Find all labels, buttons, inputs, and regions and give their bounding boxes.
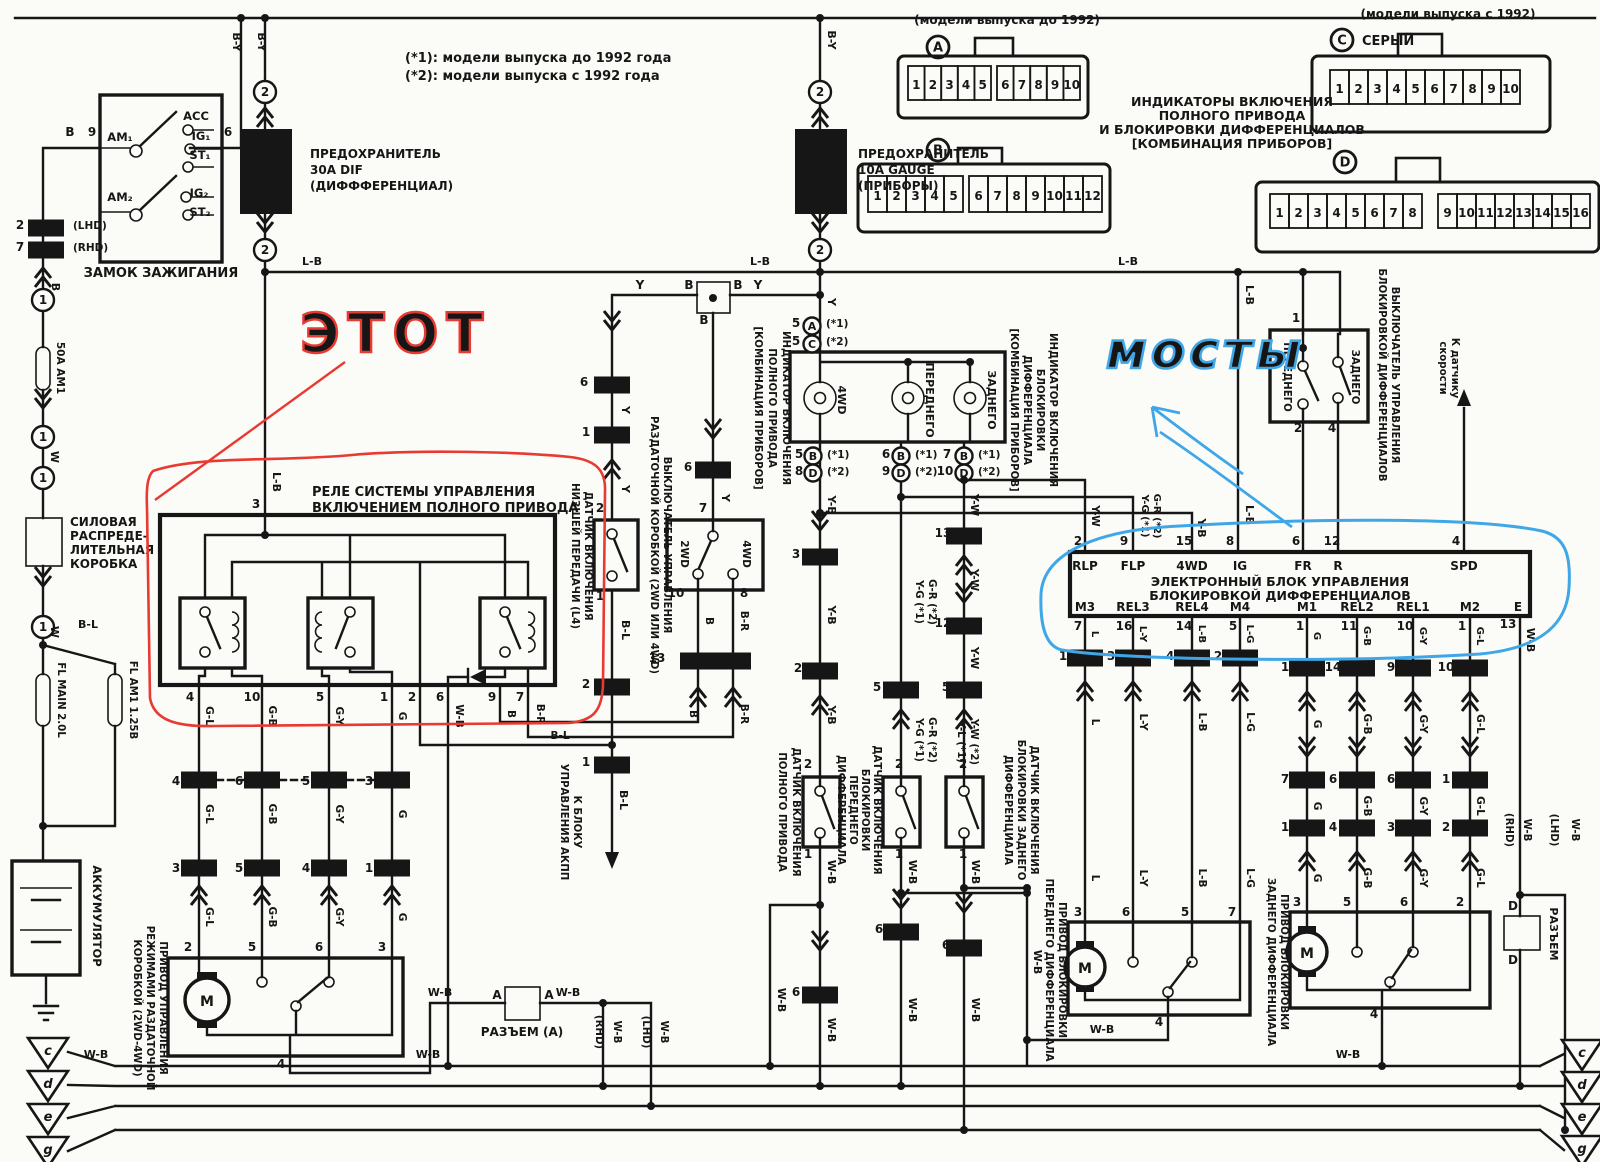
pin-number: 7 xyxy=(1389,206,1397,220)
diagram-label: (*2) xyxy=(827,466,849,478)
diagram-label: (*1) xyxy=(826,318,848,330)
pin-number: 4 xyxy=(1392,82,1400,96)
junction-dot xyxy=(960,1126,968,1134)
diagram-label: 10 xyxy=(937,464,954,478)
diagram-label: G-L xyxy=(203,804,215,824)
diagram-label: FLP xyxy=(1121,559,1146,573)
diagram-label: B-Y xyxy=(230,32,243,52)
pin-number: 9 xyxy=(1487,82,1495,96)
diagram-label: G-R (*2) xyxy=(926,717,937,763)
diagram-label: (ДИФФФЕРЕНЦИАЛ) xyxy=(310,179,453,193)
pin-number: 1 xyxy=(1335,82,1343,96)
diagram-label: B-R xyxy=(738,704,750,724)
diagram-label: 2 xyxy=(794,661,802,675)
pin-number: 4 xyxy=(962,78,970,92)
diagram-label: 5 xyxy=(792,334,800,348)
diagram-label: 9 xyxy=(882,464,890,478)
diagram-label: B-R xyxy=(534,704,546,724)
diagram-label: G-Y xyxy=(1417,627,1428,646)
diagram-label: W-B xyxy=(906,998,919,1023)
diagram-label: 6 xyxy=(1400,895,1408,909)
pin-number: 9 xyxy=(1051,78,1059,92)
diagram-label: 2 xyxy=(596,501,604,515)
diagram-label: 5 xyxy=(792,316,800,330)
diagram-label: A xyxy=(544,988,554,1002)
diagram-label: Y-B xyxy=(1195,517,1208,537)
pin-number: 2 xyxy=(1294,206,1302,220)
diagram-label: G-B xyxy=(1361,796,1373,817)
junction-dot xyxy=(1378,1062,1386,1070)
diagram-label: Y xyxy=(753,278,763,292)
diagram-label: ВКЛЮЧЕНИЕМ ПОЛНОГО ПРИВОДА xyxy=(312,501,579,516)
junction-dot xyxy=(897,493,905,501)
diagram-label: 1 xyxy=(582,755,590,769)
diagram-label: M2 xyxy=(1460,600,1480,614)
bus-triangle-letter: d xyxy=(43,1077,53,1092)
junction-dot xyxy=(39,822,47,830)
diagram-label: 9 xyxy=(1387,660,1395,674)
diagram-label: W-B xyxy=(906,860,919,885)
diagram-label: 8 xyxy=(740,586,748,600)
connector-code: BS2 xyxy=(952,942,976,955)
connector-code: EA3 xyxy=(34,222,58,235)
pin-number: 16 xyxy=(1572,206,1589,220)
diagram-label: G-B xyxy=(1361,868,1373,889)
circle-connector-id: C xyxy=(808,338,816,351)
diagram-label: 6 xyxy=(1329,772,1337,786)
diagram-label: L xyxy=(1089,875,1101,882)
diagram-label: 3 xyxy=(792,547,800,561)
diagram-label: 9 xyxy=(488,690,496,704)
diagram-label: 6 xyxy=(792,985,800,999)
junction-dot xyxy=(816,901,824,909)
diagram-label: РЕЖИМАМИ РАЗДАТОЧНОЙ xyxy=(144,926,157,1091)
connector-a-inline xyxy=(505,987,540,1020)
diagram-label: ЗАДНЕГО xyxy=(1349,350,1360,405)
diagram-label: СИЛОВАЯ xyxy=(70,515,137,529)
diagram-label: Y-G (*1) xyxy=(913,579,924,624)
diagram-label: 4 xyxy=(1155,1015,1163,1029)
diagram-label: 6 xyxy=(436,690,444,704)
pin-number: 2 xyxy=(1354,82,1362,96)
relay-internals xyxy=(180,515,545,685)
rear-actuator-internals: M xyxy=(1287,912,1470,1008)
circle-connector-id: 2 xyxy=(261,85,269,99)
diagram-label: L-Y xyxy=(1137,626,1148,643)
diagram-label: G-L xyxy=(1474,627,1485,646)
connector-code: EF1 xyxy=(809,989,832,1002)
diagram-label: 1 xyxy=(582,425,590,439)
diagram-label: G-B xyxy=(266,706,278,727)
diagram-label: НИЗШЕЙ ПЕРЕДАЧИ (L4) xyxy=(569,483,582,629)
pin-number: 10 xyxy=(1458,206,1475,220)
connector-code: IG1 xyxy=(810,551,831,564)
connector-code: IG4 xyxy=(382,774,403,787)
diagram-label: W-B xyxy=(1521,819,1532,842)
diagram-label: 6 xyxy=(882,447,890,461)
diagram-label: ПЕРЕДНЕГО xyxy=(847,775,858,845)
junction-dot xyxy=(647,1102,655,1110)
diagram-label: ИНДИКАТОР ВКЛЮЧЕНИЯ xyxy=(1047,333,1058,487)
diagram-label: B xyxy=(684,278,693,292)
diagram-label: B xyxy=(505,710,517,718)
diagram-label: A xyxy=(492,988,502,1002)
diagram-label: B-L xyxy=(78,618,98,631)
red-annotation-text: ЭТОТ xyxy=(300,302,491,365)
diagram-label: G-L xyxy=(1474,868,1486,888)
diagram-label: 5 xyxy=(235,861,243,875)
diagram-label: W-B xyxy=(416,1048,441,1061)
circle-connector-id: B xyxy=(897,450,905,463)
diagram-label: 30A DIF xyxy=(310,163,363,177)
junction-dot xyxy=(1516,1082,1524,1090)
diagram-label: W-B xyxy=(1569,819,1580,842)
diagram-label: Y-W xyxy=(1089,504,1101,527)
diagram-label: AM₁ xyxy=(107,130,132,144)
diagram-label: G-B xyxy=(1361,714,1373,735)
diagram-label: L-B xyxy=(1196,625,1207,643)
pin-number: 6 xyxy=(1001,78,1009,92)
diagram-label: 3 xyxy=(378,940,386,954)
diagram-label: БЛОКИРОВКИ ЗАДНЕГО xyxy=(1015,740,1026,881)
diagram-label: КОРОБКОЙ (2WD-4WD) xyxy=(131,939,144,1076)
diagram-label: L xyxy=(1089,719,1101,726)
diagram-label: ПРИВОД БЛОКИРОВКИ xyxy=(1056,902,1067,1038)
pin-number: 8 xyxy=(1034,78,1042,92)
connector-code: EE1 xyxy=(381,862,404,875)
pin-number: 5 xyxy=(979,78,987,92)
connector-code: BF1 xyxy=(889,684,913,697)
junction-dot xyxy=(966,358,974,366)
diagram-label: 5 xyxy=(316,690,324,704)
diagram-label: L-G xyxy=(1244,712,1256,732)
connector-code: BQ1 xyxy=(1294,774,1319,787)
diagram-label: G-Y xyxy=(333,706,345,725)
connector-code: EE1 xyxy=(188,862,211,875)
connector-code: IG1 xyxy=(602,379,623,392)
diagram-label: M1 xyxy=(1297,600,1317,614)
diagram-label: 7 xyxy=(943,447,951,461)
diagram-label: 2WD xyxy=(678,540,690,568)
diagram-label: Y-W xyxy=(968,568,981,592)
pin-number: 3 xyxy=(945,78,953,92)
diagram-label: 15 xyxy=(1176,534,1193,548)
diagram-label: УПРАВЛЕНИЯ АКПП xyxy=(558,764,569,881)
circle-connector-id: B xyxy=(960,450,968,463)
diagram-label: 4 xyxy=(302,861,310,875)
junction-dot xyxy=(1234,268,1242,276)
pin-number: 5 xyxy=(949,189,957,203)
connector-code: BL2 xyxy=(1401,662,1424,675)
pin-number: 12 xyxy=(1496,206,1513,220)
pin-number: 9 xyxy=(1031,189,1039,203)
diagram-label: 9 xyxy=(88,125,96,139)
diagram-label: 4WD xyxy=(1176,559,1208,573)
junction-dot xyxy=(904,358,912,366)
pin-number: 11 xyxy=(1477,206,1494,220)
circle-connector-id: 1 xyxy=(39,293,47,307)
diagram-label: 5 xyxy=(1343,895,1351,909)
diagram-label: W-B xyxy=(84,1048,109,1061)
diagram-label: Y-W xyxy=(968,493,981,517)
diagram-label: ST₁ xyxy=(189,148,210,162)
diagram-label: 50A AM1 xyxy=(54,342,66,394)
diagram-label: ЗАМОК ЗАЖИГАНИЯ xyxy=(84,266,239,281)
diagram-label: 4 xyxy=(1452,534,1460,548)
diagram-label: G-L xyxy=(203,706,215,726)
diagram-label: (модели выпуска до 1992) xyxy=(914,13,1100,27)
junction-dot xyxy=(237,14,245,22)
diagram-label: W-B xyxy=(775,988,788,1013)
diagram-label: 6 xyxy=(1122,905,1130,919)
diagram-label: G xyxy=(1311,802,1323,811)
diagram-label: (*2) xyxy=(826,336,848,348)
diagram-label: ДИФФЕРЕНЦИАЛА xyxy=(1021,355,1032,465)
relay-unit-box xyxy=(160,515,555,685)
connector-code: IG4 xyxy=(602,759,623,772)
rear-diff-sensor-box xyxy=(946,777,983,847)
diagram-label: R xyxy=(1333,559,1342,573)
svg-text:C: C xyxy=(1337,34,1347,49)
connector-code: BS2 xyxy=(952,684,976,697)
diagram-label: ПОЛНОГО ПРИВОДА xyxy=(766,348,777,468)
diagram-label: 6 xyxy=(224,125,232,139)
pin-number: 10 xyxy=(1046,189,1063,203)
pin-number: 3 xyxy=(1313,206,1321,220)
bus-triangle-letter: e xyxy=(44,1110,53,1125)
junction-dot xyxy=(816,1082,824,1090)
indicator-cluster-box xyxy=(790,352,1005,442)
diagram-label: W-B xyxy=(969,998,982,1023)
bus-triangle-letter: e xyxy=(1578,1110,1587,1125)
diagram-label: IG xyxy=(1233,559,1247,573)
diagram-label: РАЗЪЕМ (А) xyxy=(481,1025,563,1039)
diagram-label: 2 xyxy=(16,218,24,232)
diagram-label: 4 xyxy=(1328,421,1336,435)
diagram-label: РЕЛЕ СИСТЕМЫ УПРАВЛЕНИЯ xyxy=(312,485,535,500)
diagram-canvas: M M M xyxy=(0,0,1600,1162)
diagram-label: REL4 xyxy=(1175,600,1208,614)
connector-code: BP1 xyxy=(1121,652,1145,665)
front-diff-sensor-box xyxy=(883,777,920,847)
diagram-label: W-B xyxy=(1090,1023,1115,1036)
connector-code: BL2 xyxy=(1345,662,1368,675)
diagram-label: 4 xyxy=(1370,1007,1378,1021)
diagram-label: M3 xyxy=(1075,600,1095,614)
indicator-lamps xyxy=(804,382,986,414)
bus-triangle-letter: g xyxy=(1577,1142,1586,1157)
diagram-label: ИНДИКАТОРЫ ВКЛЮЧЕНИЯ xyxy=(1131,94,1333,109)
pin-number: 7 xyxy=(1449,82,1457,96)
diagram-label: FR xyxy=(1294,559,1311,573)
diagram-label: 6 xyxy=(315,940,323,954)
junction-dot xyxy=(599,999,607,1007)
diagram-label: (LHD) xyxy=(73,220,107,232)
diagram-label: РАЗДАТОЧНОЙ КОРОБКОЙ (2WD ИЛИ 4WD) xyxy=(648,416,661,674)
diagram-label: [КОМБИНАЦИЯ ПРИБОРОВ] xyxy=(752,326,763,489)
note-star1: (*1): модели выпуска до 1992 года xyxy=(405,51,671,66)
diagram-label: IG₂ xyxy=(190,186,209,200)
diagram-label: И БЛОКИРОВКИ ДИФФЕРЕНЦИАЛОВ xyxy=(1099,122,1365,137)
diagram-label: Y xyxy=(825,297,838,307)
battery-box xyxy=(12,861,80,975)
svg-text:M: M xyxy=(1078,961,1092,977)
junction-dot xyxy=(1023,1036,1031,1044)
diagram-label: B xyxy=(699,313,708,327)
transfer-actuator-internals: M xyxy=(185,958,392,1056)
diagram-label: W-B xyxy=(969,860,982,885)
diagram-label: 5 xyxy=(942,680,950,694)
bus-triangle-letter: c xyxy=(44,1044,52,1059)
diagram-label: (*2) xyxy=(978,466,1000,478)
diagram-label: L-B xyxy=(1196,712,1208,731)
diagram-label: 7 xyxy=(516,690,524,704)
diagram-label: ЭЛЕКТРОННЫЙ БЛОК УПРАВЛЕНИЯ xyxy=(1151,574,1409,589)
connector-code: IG4 xyxy=(252,774,273,787)
diagram-label: ДАТЧИК ВКЛЮЧЕНИЯ xyxy=(871,745,882,874)
connector-code: IG4 xyxy=(189,774,210,787)
diagram-label: 12 xyxy=(701,651,718,665)
circle-connector-id: 2 xyxy=(816,85,824,99)
diagram-label: РАСПРЕДЕ- xyxy=(70,529,148,543)
junction-dot xyxy=(1561,1126,1569,1134)
pin-number: 8 xyxy=(1408,206,1416,220)
pin-number: 6 xyxy=(974,189,982,203)
diagram-label: ДИФФЕРЕНЦИАЛА xyxy=(835,755,846,865)
diagram-label: REL1 xyxy=(1396,600,1429,614)
svg-text:A: A xyxy=(933,41,943,56)
junction-dot xyxy=(261,531,269,539)
ignition-internals xyxy=(100,112,241,221)
diagram-label: ЛИТЕЛЬНАЯ xyxy=(70,543,154,557)
diagram-label: G xyxy=(1311,632,1322,640)
diagram-label: D xyxy=(1508,899,1518,913)
diagram-label: 2 xyxy=(408,690,416,704)
diagram-label: 2 xyxy=(895,757,903,771)
diagram-label: AM₂ xyxy=(107,190,132,204)
pin-number: 6 xyxy=(1370,206,1378,220)
diagram-label: 4 xyxy=(277,1057,285,1071)
wiring-diagram-page: { "document": { "kind": "scanned wiring … xyxy=(0,0,1600,1162)
connector-code: IG4 xyxy=(319,774,340,787)
pin-number: 13 xyxy=(1515,206,1532,220)
connector-code: BL2 xyxy=(952,530,975,543)
diagram-label: 2 xyxy=(1294,421,1302,435)
diagram-label: B xyxy=(687,710,699,718)
diagram-label: L-B xyxy=(302,255,322,268)
diagram-label: (*1) xyxy=(827,449,849,461)
diagram-label: Y-B xyxy=(825,604,838,624)
pin-number: 14 xyxy=(1534,206,1551,220)
diagram-label: Y xyxy=(619,405,632,415)
diagram-label: (*1) xyxy=(915,449,937,461)
diagram-label: L-Y xyxy=(1137,713,1149,731)
fusible-link-main xyxy=(36,674,50,726)
diagram-label: (RHD) xyxy=(593,1015,604,1049)
diagram-label: 3 xyxy=(1074,905,1082,919)
connector-code: EE1 xyxy=(251,862,274,875)
diagram-label: 3 xyxy=(1387,820,1395,834)
diagram-label: 1 xyxy=(365,861,373,875)
diagram-label: ДАТЧИК ВКЛЮЧЕНИЯ xyxy=(1028,745,1039,874)
diagram-label: B-L xyxy=(619,620,632,640)
diagram-label: РАЗЪЕМ xyxy=(1547,907,1560,960)
diagram-label: G-Y xyxy=(333,907,345,926)
fusible-link-am1 xyxy=(108,674,122,726)
diode xyxy=(470,669,486,685)
diagram-label: G-B xyxy=(1361,626,1372,646)
pin-number: 5 xyxy=(1411,82,1419,96)
rear-actuator-box xyxy=(1290,912,1490,1008)
diagram-label: W-B xyxy=(611,1021,622,1044)
pin-number: 8 xyxy=(1468,82,1476,96)
diagram-label: 5 xyxy=(302,774,310,788)
circle-connector-id: D xyxy=(896,467,905,480)
diagram-label: 10 xyxy=(1438,660,1455,674)
diagram-label: 4WD xyxy=(835,386,848,415)
junction-dot xyxy=(960,476,968,484)
diagram-label: G-B xyxy=(266,907,278,928)
diagram-label: 10 xyxy=(244,690,261,704)
diagram-label: L-G xyxy=(1244,625,1255,644)
diagram-label: (модели выпуска с 1992) xyxy=(1360,7,1535,21)
junction-dot xyxy=(766,1062,774,1070)
circle-connector-id: 1 xyxy=(39,471,47,485)
4wd-sensor-box xyxy=(803,777,840,847)
diagram-label: АККУМУЛЯТОР xyxy=(90,865,104,966)
junction-dot xyxy=(39,641,47,649)
diagram-label: 9 xyxy=(1120,534,1128,548)
diagram-label: ПРЕДОХРАНИТЕЛЬ xyxy=(310,147,441,161)
diagram-label: W-B xyxy=(825,1018,838,1043)
diagram-label: 7 xyxy=(1228,905,1236,919)
diagram-label: ST₂ xyxy=(189,205,210,219)
diagram-label: Y-W xyxy=(968,646,981,670)
diagram-label: ПРИВОД БЛОКИРОВКИ xyxy=(1278,894,1289,1030)
diagram-label: B-Y xyxy=(255,32,268,52)
circle-connector-id: B xyxy=(809,450,817,463)
diagram-label: ЗАДНЕГО ДИФФЕРЕНЦИАЛА xyxy=(1265,878,1276,1046)
flow-arrows xyxy=(35,108,1478,950)
diagram-label: СЕРЫЙ xyxy=(1362,33,1414,49)
diagram-label: G xyxy=(396,712,408,721)
blue-annotation-text: мосты xyxy=(1106,322,1305,380)
diagram-label: 1 xyxy=(959,847,967,861)
svg-text:D: D xyxy=(1340,156,1351,171)
connector-code: EE1 xyxy=(318,862,341,875)
diagram-label: ПОЛНОГО ПРИВОДА xyxy=(776,752,787,872)
diagram-label: W-B xyxy=(428,986,453,999)
diagram-label: 3 xyxy=(1293,895,1301,909)
diagram-label: G xyxy=(396,810,408,819)
diagram-label: КОРОБКА xyxy=(70,557,138,571)
diagram-label: Y xyxy=(635,278,645,292)
bus-triangle-letter: c xyxy=(1578,1046,1586,1061)
pin-number: 7 xyxy=(1018,78,1026,92)
diagram-label: W xyxy=(48,451,61,463)
diagram-label: (LHD) xyxy=(1548,814,1559,847)
circle-connector-id: D xyxy=(808,467,817,480)
diagram-label: Y xyxy=(619,484,632,494)
diagram-label: 2 xyxy=(582,677,590,691)
bus-triangle-letter: d xyxy=(1577,1078,1587,1093)
diagram-label: [КОМБИНАЦИЯ ПРИБОРОВ] xyxy=(1132,136,1332,151)
front-actuator-internals: M xyxy=(1065,922,1240,1015)
connector-view-C: C12345678910 xyxy=(1312,29,1550,132)
connector-code: BS2 xyxy=(1295,822,1319,835)
fuse-30a-dif xyxy=(240,129,292,214)
diagram-label: 5 xyxy=(795,447,803,461)
